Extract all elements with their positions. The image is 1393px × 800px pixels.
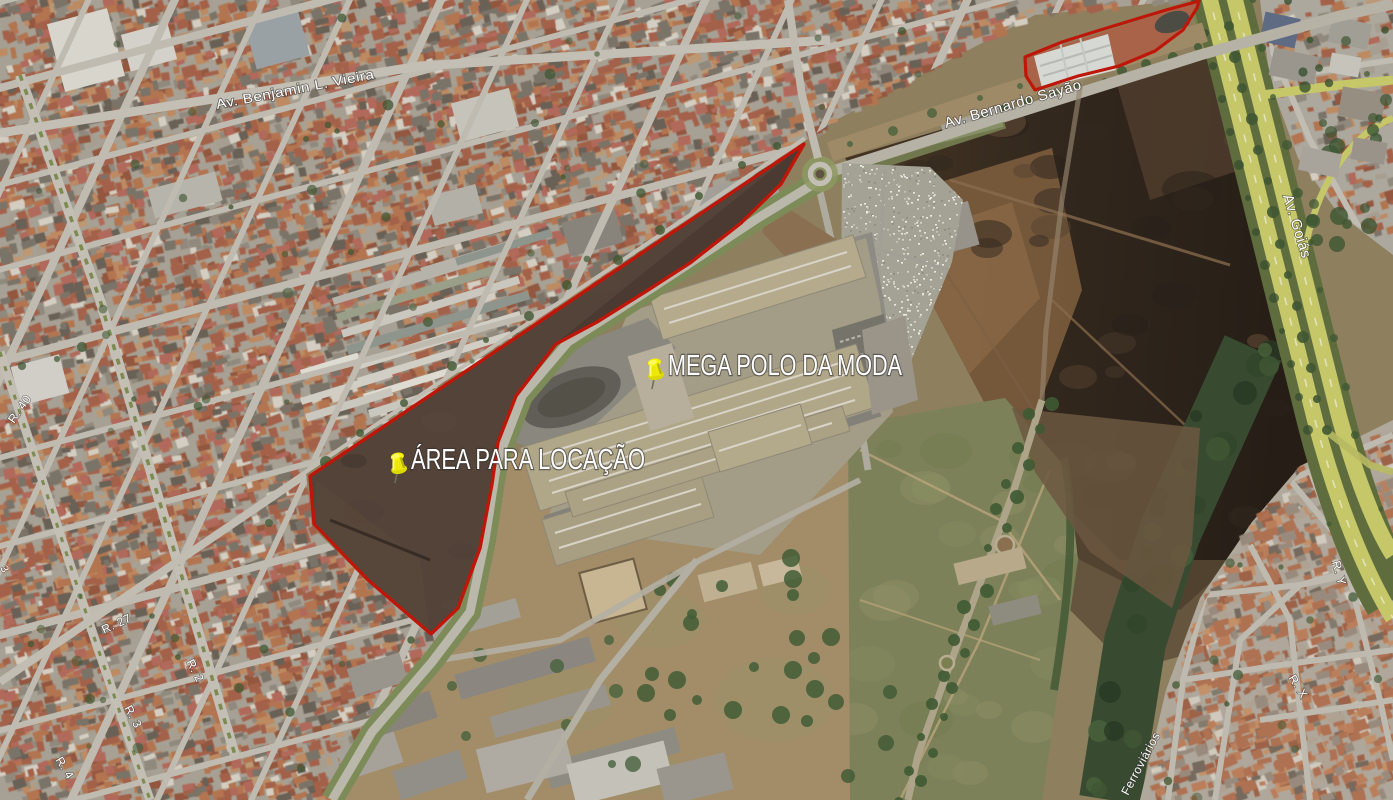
svg-text:ÁREA PARA LOCAÇÃO: ÁREA PARA LOCAÇÃO — [411, 442, 645, 476]
svg-text:MEGA POLO DA MODA: MEGA POLO DA MODA — [668, 350, 902, 382]
